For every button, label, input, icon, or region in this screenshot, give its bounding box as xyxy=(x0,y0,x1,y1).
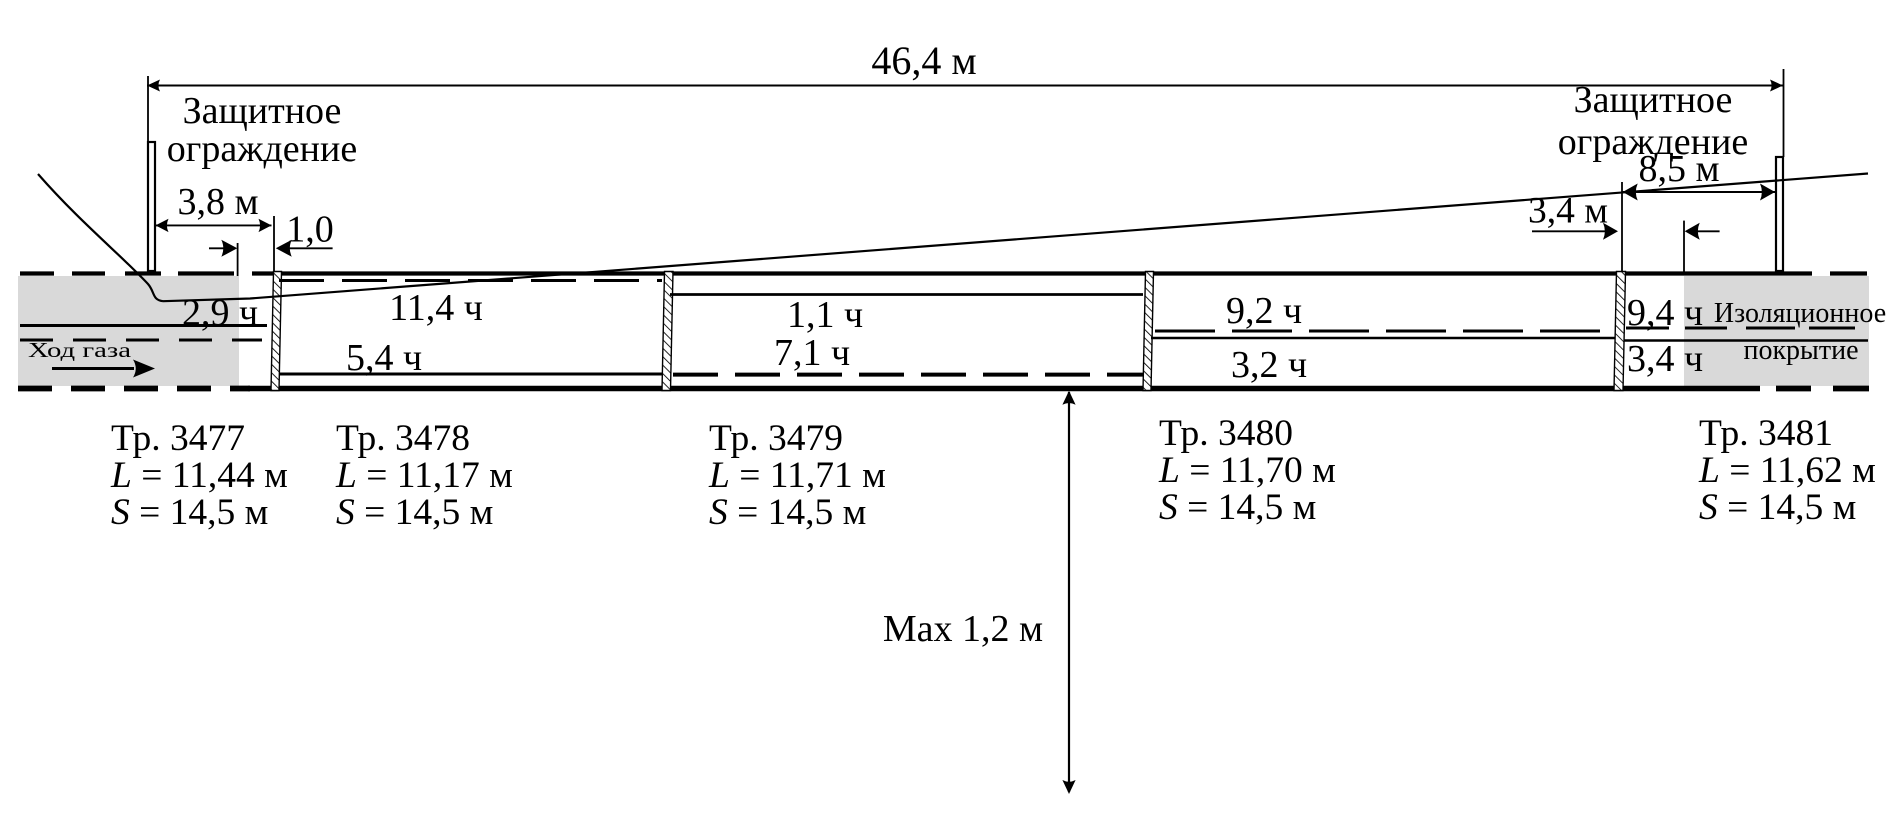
svg-text:1,1 ч: 1,1 ч xyxy=(787,294,863,336)
svg-text:покрытие: покрытие xyxy=(1743,335,1858,366)
svg-text:8,5 м: 8,5 м xyxy=(1638,148,1719,190)
svg-text:9,4 ч: 9,4 ч xyxy=(1627,292,1703,334)
svg-text:Тр. 3480: Тр. 3480 xyxy=(1159,413,1293,454)
svg-text:L = 11,62 м: L = 11,62 м xyxy=(1698,450,1876,491)
svg-text:Тр. 3477: Тр. 3477 xyxy=(111,418,245,459)
svg-text:3,2 ч: 3,2 ч xyxy=(1231,344,1307,386)
svg-text:S = 14,5 м: S = 14,5 м xyxy=(709,492,866,533)
svg-text:7,1 ч: 7,1 ч xyxy=(774,332,850,374)
svg-text:3,4 м: 3,4 м xyxy=(1528,191,1608,232)
svg-text:Тр. 3478: Тр. 3478 xyxy=(336,418,470,459)
svg-text:Защитное: Защитное xyxy=(1574,79,1733,121)
svg-text:L = 11,70 м: L = 11,70 м xyxy=(1158,450,1336,491)
svg-text:Защитное: Защитное xyxy=(183,90,342,132)
svg-text:S = 14,5 м: S = 14,5 м xyxy=(1159,487,1316,528)
svg-text:46,4 м: 46,4 м xyxy=(871,38,976,83)
svg-text:1,0: 1,0 xyxy=(286,209,334,251)
svg-text:Тр. 3481: Тр. 3481 xyxy=(1699,413,1833,454)
svg-text:L = 11,71 м: L = 11,71 м xyxy=(708,455,886,496)
svg-text:5,4 ч: 5,4 ч xyxy=(346,337,422,379)
svg-text:ограждение: ограждение xyxy=(167,128,357,170)
svg-text:S = 14,5 м: S = 14,5 м xyxy=(1699,487,1856,528)
svg-text:Max 1,2 м: Max 1,2 м xyxy=(883,608,1043,650)
svg-text:Ход газа: Ход газа xyxy=(28,338,132,362)
svg-text:S = 14,5 м: S = 14,5 м xyxy=(111,492,268,533)
svg-text:9,2 ч: 9,2 ч xyxy=(1226,290,1302,332)
svg-text:11,4 ч: 11,4 ч xyxy=(389,287,483,329)
svg-text:Тр. 3479: Тр. 3479 xyxy=(709,418,843,459)
svg-text:3,8 м: 3,8 м xyxy=(177,181,258,223)
svg-text:L = 11,17 м: L = 11,17 м xyxy=(335,455,513,496)
svg-text:3,4 ч: 3,4 ч xyxy=(1627,338,1703,380)
svg-text:L = 11,44 м: L = 11,44 м xyxy=(110,455,288,496)
svg-text:Изоляционное: Изоляционное xyxy=(1714,298,1886,329)
svg-text:S = 14,5 м: S = 14,5 м xyxy=(336,492,493,533)
